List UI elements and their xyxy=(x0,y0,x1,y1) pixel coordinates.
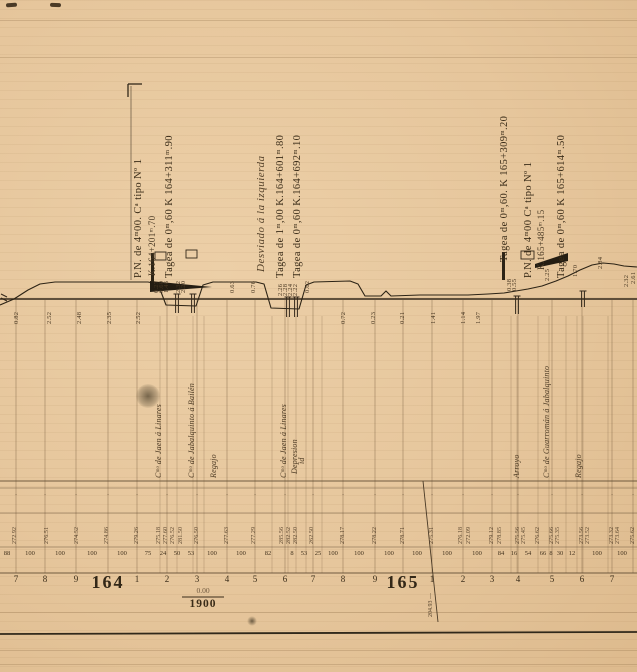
annotation-desviado: Desviado á la izquierda xyxy=(256,156,267,273)
kilometre-post-number: 165 xyxy=(387,573,420,591)
annotation-tagea-164-692: Tagea de 0ᵐ,60 K.164+692ᵐ.10 xyxy=(293,135,304,278)
hectometre-number: 2 xyxy=(461,575,466,584)
elevation-label: 276.18 xyxy=(458,527,464,544)
alignment-tick: · xyxy=(611,492,613,499)
terrain-height-label: 2.20 xyxy=(181,281,188,293)
hectometre-number: 9 xyxy=(373,575,378,584)
terrain-height-label: 2.48 xyxy=(77,312,84,324)
alignment-tick: · xyxy=(374,492,376,499)
distance-value: 100 xyxy=(472,551,482,558)
distance-value: 100 xyxy=(384,551,394,558)
distance-value: 100 xyxy=(442,551,452,558)
alignment-tick: · xyxy=(517,492,519,499)
hectometre-number: 3 xyxy=(490,575,495,584)
elevation-label: 277.29 xyxy=(251,527,257,544)
hectometre-number: 8 xyxy=(43,575,48,584)
distance-value: 24 xyxy=(160,551,167,558)
distance-value: 50 xyxy=(174,551,181,558)
distance-value: 84 xyxy=(498,551,505,558)
gradient-length-value: 1900 xyxy=(190,599,217,611)
elevation-label: 275.31 xyxy=(429,527,435,544)
distance-value: 8 xyxy=(549,551,552,558)
elevation-label: 277.60 xyxy=(163,527,169,544)
distance-value: 54 xyxy=(525,551,532,558)
hectometre-number: 2 xyxy=(165,575,170,584)
terrain-height-label: 1.46 xyxy=(164,281,171,293)
alignment-tick: · xyxy=(342,492,344,499)
terrain-height-label: 1.97 xyxy=(476,312,483,324)
crossing-feature-label: Regajo xyxy=(210,454,218,478)
elevation-label: 278.85 xyxy=(497,527,503,544)
elevation-label: 278.71 xyxy=(400,527,406,544)
terrain-height-label: 0.21 xyxy=(400,312,407,324)
elevation-label: 273.52 xyxy=(585,527,591,544)
hectometre-number: 5 xyxy=(253,575,258,584)
terrain-height-label: 2.61 xyxy=(631,272,637,284)
elevation-label: 281.50 xyxy=(178,527,184,544)
elevation-label: 285.56 xyxy=(279,527,285,544)
distance-value: 53 xyxy=(301,551,308,558)
crossing-feature-label: Cᵐᵒ de Guarromán á Jabalquinto xyxy=(543,366,551,478)
elevation-label: 279.12 xyxy=(489,527,495,544)
kilometre-post-number: 164 xyxy=(92,573,125,591)
elevation-label: 276.62 xyxy=(535,527,541,544)
elevation-label: 272.92 xyxy=(12,527,18,544)
distance-value: 100 xyxy=(592,551,602,558)
hectometre-number: 9 xyxy=(74,575,79,584)
terrain-height-label: 2.52 xyxy=(136,312,143,324)
crossing-feature-label: Arroyo xyxy=(513,454,521,478)
elevation-label: 275.18 xyxy=(156,527,162,544)
hectometre-number: 7 xyxy=(311,575,316,584)
terrain-height-label: 1.41 xyxy=(431,312,438,324)
alignment-tick: · xyxy=(226,492,228,499)
terrain-height-label: 0.55 xyxy=(512,279,519,291)
elevation-label: 275.35 xyxy=(555,527,561,544)
crossing-feature-label: id xyxy=(298,457,306,464)
annotation-pn-right-title: P.N. de 4ᵐ00 Cᵃ tipo Nº 1 xyxy=(524,162,535,278)
alignment-tick: · xyxy=(431,492,433,499)
terrain-height-label: 2.25 xyxy=(545,269,552,281)
elevation-label: 273.64 xyxy=(615,527,621,544)
hectometre-number: 3 xyxy=(195,575,200,584)
distance-value: 100 xyxy=(617,551,627,558)
alignment-tick: · xyxy=(312,492,314,499)
distance-value: 100 xyxy=(55,551,65,558)
terrain-height-label: 2.84 xyxy=(598,257,605,269)
distance-value: 88 xyxy=(4,551,11,558)
distance-value: 8 xyxy=(290,551,293,558)
hectometre-number: 7 xyxy=(14,575,19,584)
sheet-bottom-rule xyxy=(0,632,637,634)
hectometre-number: 5 xyxy=(550,575,555,584)
terrain-height-label: 0.63 xyxy=(230,281,237,293)
edge-mark xyxy=(6,3,17,8)
crossing-feature-label: Cᵐᵒ de Jaen á Linares xyxy=(155,404,163,478)
alignment-tick: · xyxy=(75,492,77,499)
annotation-tagea-164-601: Tagea de 1ᵐ,00 K.164+601ᵐ.80 xyxy=(276,135,287,278)
distance-value: 100 xyxy=(117,551,127,558)
annotation-pn-left-km: K.164+201ᵐ.70 xyxy=(148,216,157,276)
alignment-tick: · xyxy=(632,492,634,499)
elevation-label: 282.52 xyxy=(286,527,292,544)
distance-value: 53 xyxy=(188,551,195,558)
elevation-label: 272.09 xyxy=(466,527,472,544)
elevation-label: 276.51 xyxy=(44,527,50,544)
annotation-tagea-165-309: Tagea de 0ᵐ,60. K 165+309ᵐ.20 xyxy=(500,116,511,262)
distance-value: 12 xyxy=(569,551,576,558)
elevation-label: 275.62 xyxy=(630,527,636,544)
terrain-height-label: 0.23 xyxy=(371,312,378,324)
crossing-feature-label: Cᵐᵒ de Jaen á Linares xyxy=(280,404,288,478)
distance-value: 100 xyxy=(25,551,35,558)
elevation-label: 275.45 xyxy=(521,527,527,544)
alignment-tick: · xyxy=(284,492,286,499)
profile-sheet: P.N. de 4ᵐ00. Cᵃ tipo Nº 1 K.164+201ᵐ.70… xyxy=(0,0,637,672)
hectometre-number: 1 xyxy=(430,575,435,584)
hectometre-number: 6 xyxy=(283,575,288,584)
elevation-label: 262.50 xyxy=(309,527,315,544)
alignment-tick: · xyxy=(107,492,109,499)
distance-value: 16 xyxy=(511,551,518,558)
distance-value: 100 xyxy=(328,551,338,558)
elevation-label: 279.26 xyxy=(134,527,140,544)
terrain-height-label: 1.14 xyxy=(461,312,468,324)
distance-value: 30 xyxy=(557,551,564,558)
distance-value: 25 xyxy=(315,551,322,558)
distance-value: 100 xyxy=(412,551,422,558)
gradient-slope-value: 0.00 xyxy=(196,587,209,595)
alignment-tick: · xyxy=(402,492,404,499)
terrain-height-label: 2.22 xyxy=(293,284,300,296)
annotation-pn-left-title: P.N. de 4ᵐ00. Cᵃ tipo Nº 1 xyxy=(134,159,145,278)
distance-value: 100 xyxy=(354,551,364,558)
distance-value: 82 xyxy=(265,551,272,558)
hectometre-number: 4 xyxy=(516,575,521,584)
hectometre-number: 6 xyxy=(580,575,585,584)
terrain-height-label: 0.82 xyxy=(14,312,21,324)
distance-value: 100 xyxy=(207,551,217,558)
elevation-label: 278.22 xyxy=(372,527,378,544)
diagonal-chainage-label: 204.93 — xyxy=(428,593,434,617)
alignment-tick: · xyxy=(44,492,46,499)
crossing-feature-label: Regajo xyxy=(575,454,583,478)
terrain-height-label: 0.72 xyxy=(341,312,348,324)
terrain-height-label: 1.70 xyxy=(573,265,580,277)
elevation-label: 276.50 xyxy=(194,527,200,544)
culvert-plan-icon xyxy=(186,250,197,258)
terrain-height-label: 0.76 xyxy=(251,281,258,293)
elevation-label: 276.52 xyxy=(170,527,176,544)
terrain-height-label: 2.52 xyxy=(47,312,54,324)
alignment-tick: · xyxy=(551,492,553,499)
terrain-height-label: 0.62 xyxy=(305,281,312,293)
elevation-label: 282.50 xyxy=(293,527,299,544)
distance-value: 100 xyxy=(87,551,97,558)
elevation-label: 274.52 xyxy=(74,527,80,544)
annotation-tagea-165-614: Tagea de 0ᵐ,60 K 165+614ᵐ.50 xyxy=(557,135,568,278)
alignment-tick: · xyxy=(196,492,198,499)
alignment-tick: · xyxy=(254,492,256,499)
hectometre-number: 1 xyxy=(135,575,140,584)
elevation-label: 277.63 xyxy=(224,527,230,544)
alignment-tick: · xyxy=(491,492,493,499)
alignment-tick: · xyxy=(15,492,17,499)
elevation-label: 278.17 xyxy=(340,527,346,544)
annotation-pn-right-km: K.165+485ᵐ.15 xyxy=(537,210,546,270)
distance-value: 75 xyxy=(145,551,152,558)
crossing-feature-label: Cᵐᵒ de Jabalquinto á Bailén xyxy=(188,383,196,478)
hectometre-number: 7 xyxy=(610,575,615,584)
annotation-tagea-164-311: Tagea de 0ᵐ,60 K 164+311ᵐ.90 xyxy=(165,135,176,278)
edge-mark xyxy=(50,3,61,8)
hectometre-number: 4 xyxy=(225,575,230,584)
elevation-label: 274.86 xyxy=(104,527,110,544)
alignment-tick: · xyxy=(136,492,138,499)
distance-value: 100 xyxy=(236,551,246,558)
terrain-height-label: 2.35 xyxy=(107,312,114,324)
hectometre-number: 8 xyxy=(341,575,346,584)
alignment-tick: · xyxy=(166,492,168,499)
hash-mark xyxy=(1,294,7,297)
alignment-tick: · xyxy=(581,492,583,499)
alignment-tick: · xyxy=(462,492,464,499)
distance-value: 66 xyxy=(540,551,547,558)
